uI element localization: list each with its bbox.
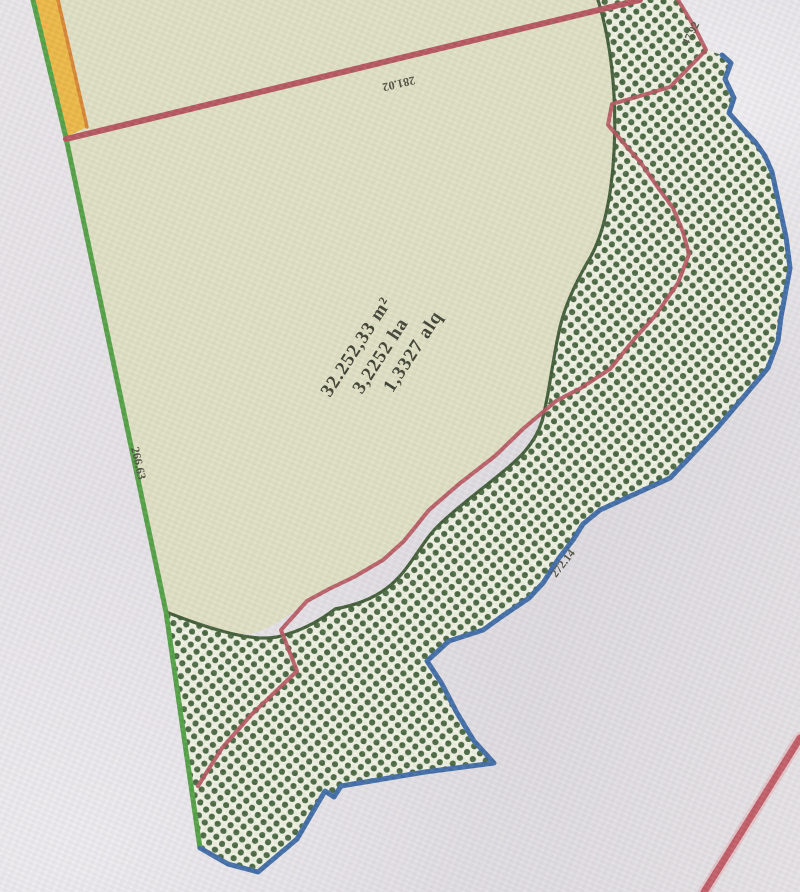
- scanned-survey-map-photo: 32.252,33 m² 3,2252 ha 1,3327 alq 281.02…: [0, 0, 800, 892]
- survey-map-canvas: 32.252,33 m² 3,2252 ha 1,3327 alq 281.02…: [0, 0, 800, 892]
- road-line-bottom-right: [704, 738, 800, 892]
